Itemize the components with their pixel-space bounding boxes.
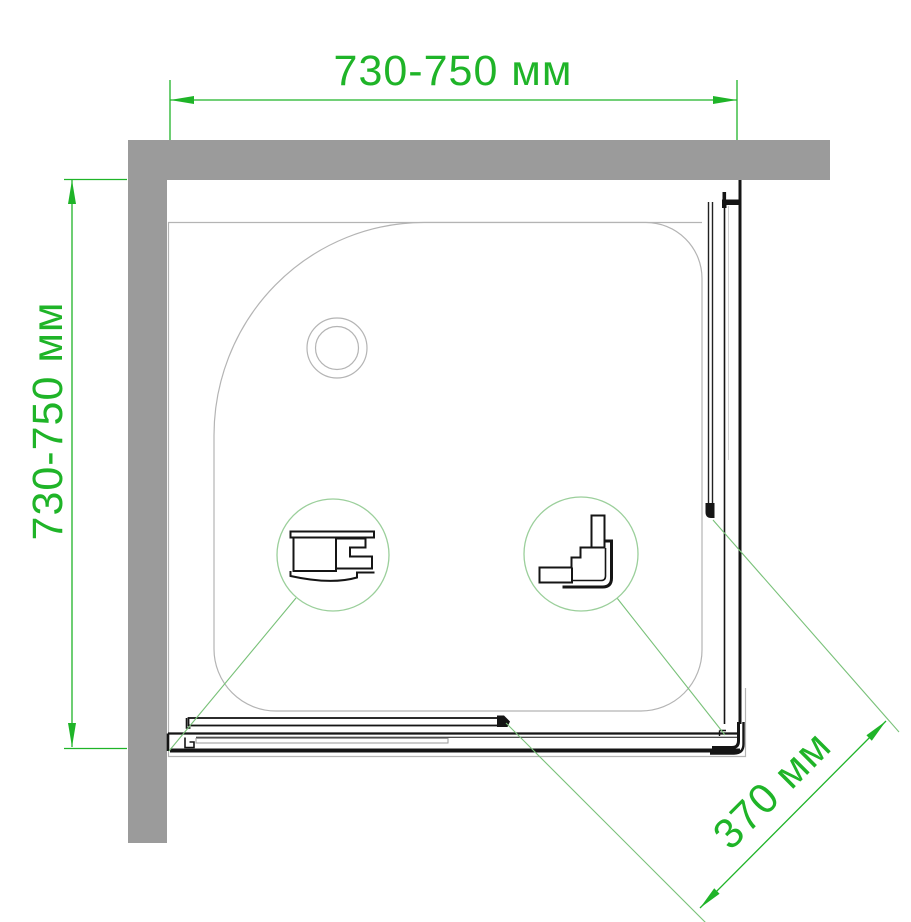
arrow-top-left — [170, 96, 194, 104]
dimension-top-label: 730-750 мм — [334, 47, 573, 95]
leader-door-cap — [506, 723, 712, 922]
sliding-door-panel — [189, 718, 499, 726]
corner-detail-glass — [592, 516, 605, 548]
dimension-left-label: 730-750 мм — [24, 302, 72, 541]
bottom-rail-assembly — [168, 716, 740, 752]
wall-bracket-lug — [723, 192, 727, 201]
arrow-left-bottom — [68, 723, 76, 747]
right-side-assembly — [706, 180, 741, 724]
side-glass-end-cap — [706, 503, 715, 518]
dimension-diagonal-label: 370 мм — [704, 722, 840, 858]
arrow-diagonal-upper — [866, 721, 886, 741]
rail-glass-slot — [196, 739, 448, 744]
shower-tray — [169, 223, 746, 757]
tray-basin — [214, 223, 702, 712]
shower-enclosure-top-view-drawing: 730-750 мм 730-750 мм 370 мм — [0, 0, 911, 922]
top-wall — [128, 140, 830, 180]
rail-left-step-profile — [185, 738, 194, 748]
arrow-left-top — [68, 180, 76, 204]
arrow-diagonal-lower — [700, 888, 720, 908]
arrow-top-right — [713, 96, 737, 104]
left-wall — [128, 140, 167, 843]
drawing-canvas: 730-750 мм 730-750 мм 370 мм — [0, 0, 911, 922]
rail-profile-box — [294, 538, 337, 572]
